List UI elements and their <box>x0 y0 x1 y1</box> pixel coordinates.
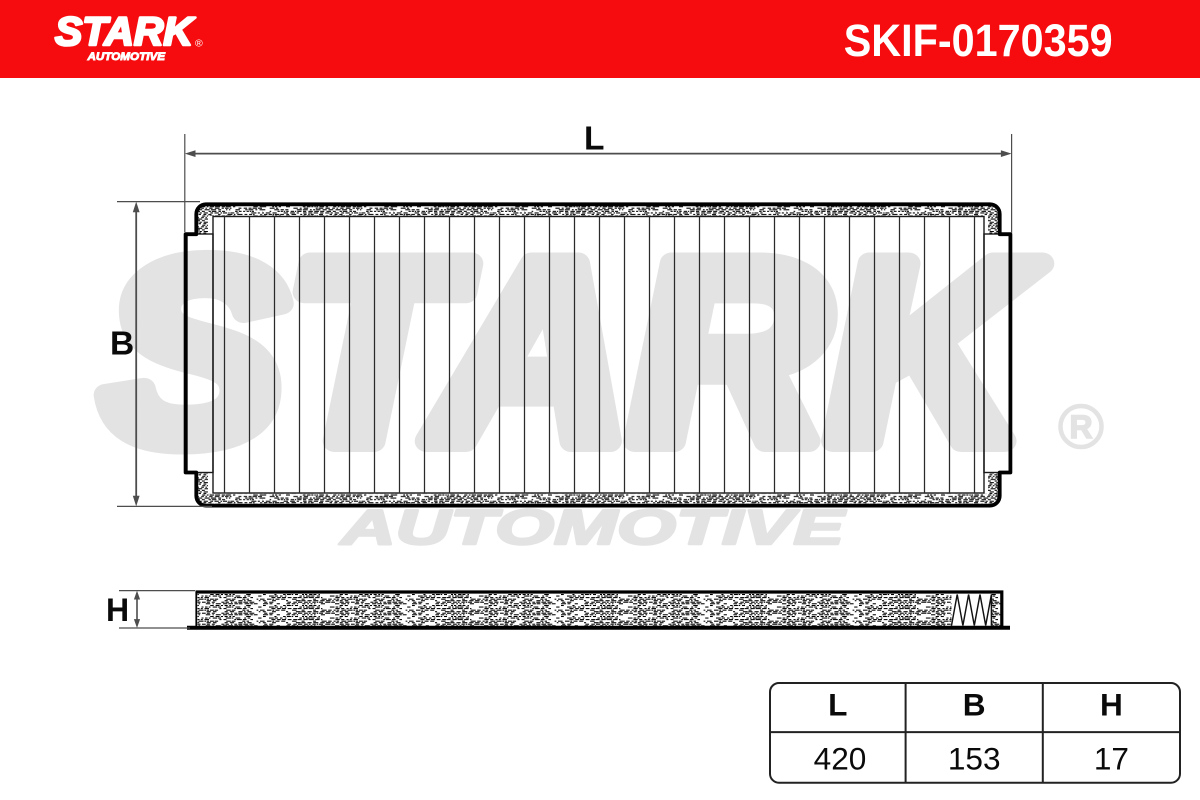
svg-text:420: 420 <box>814 740 867 776</box>
svg-text:AUTOMOTIVE: AUTOMOTIVE <box>339 501 846 555</box>
svg-text:AUTOMOTIVE: AUTOMOTIVE <box>86 51 165 63</box>
svg-text:STARK: STARK <box>55 10 196 54</box>
svg-text:B: B <box>963 687 986 723</box>
svg-text:B: B <box>110 326 134 363</box>
svg-text:17: 17 <box>1094 740 1129 776</box>
svg-text:H: H <box>106 592 129 628</box>
svg-text:L: L <box>828 687 847 723</box>
svg-text:®: ® <box>195 38 203 50</box>
svg-text:SKIF-0170359: SKIF-0170359 <box>844 15 1113 66</box>
svg-text:153: 153 <box>948 740 1001 776</box>
svg-text:H: H <box>1100 687 1123 723</box>
svg-text:R: R <box>1069 409 1092 445</box>
svg-text:L: L <box>584 121 604 158</box>
